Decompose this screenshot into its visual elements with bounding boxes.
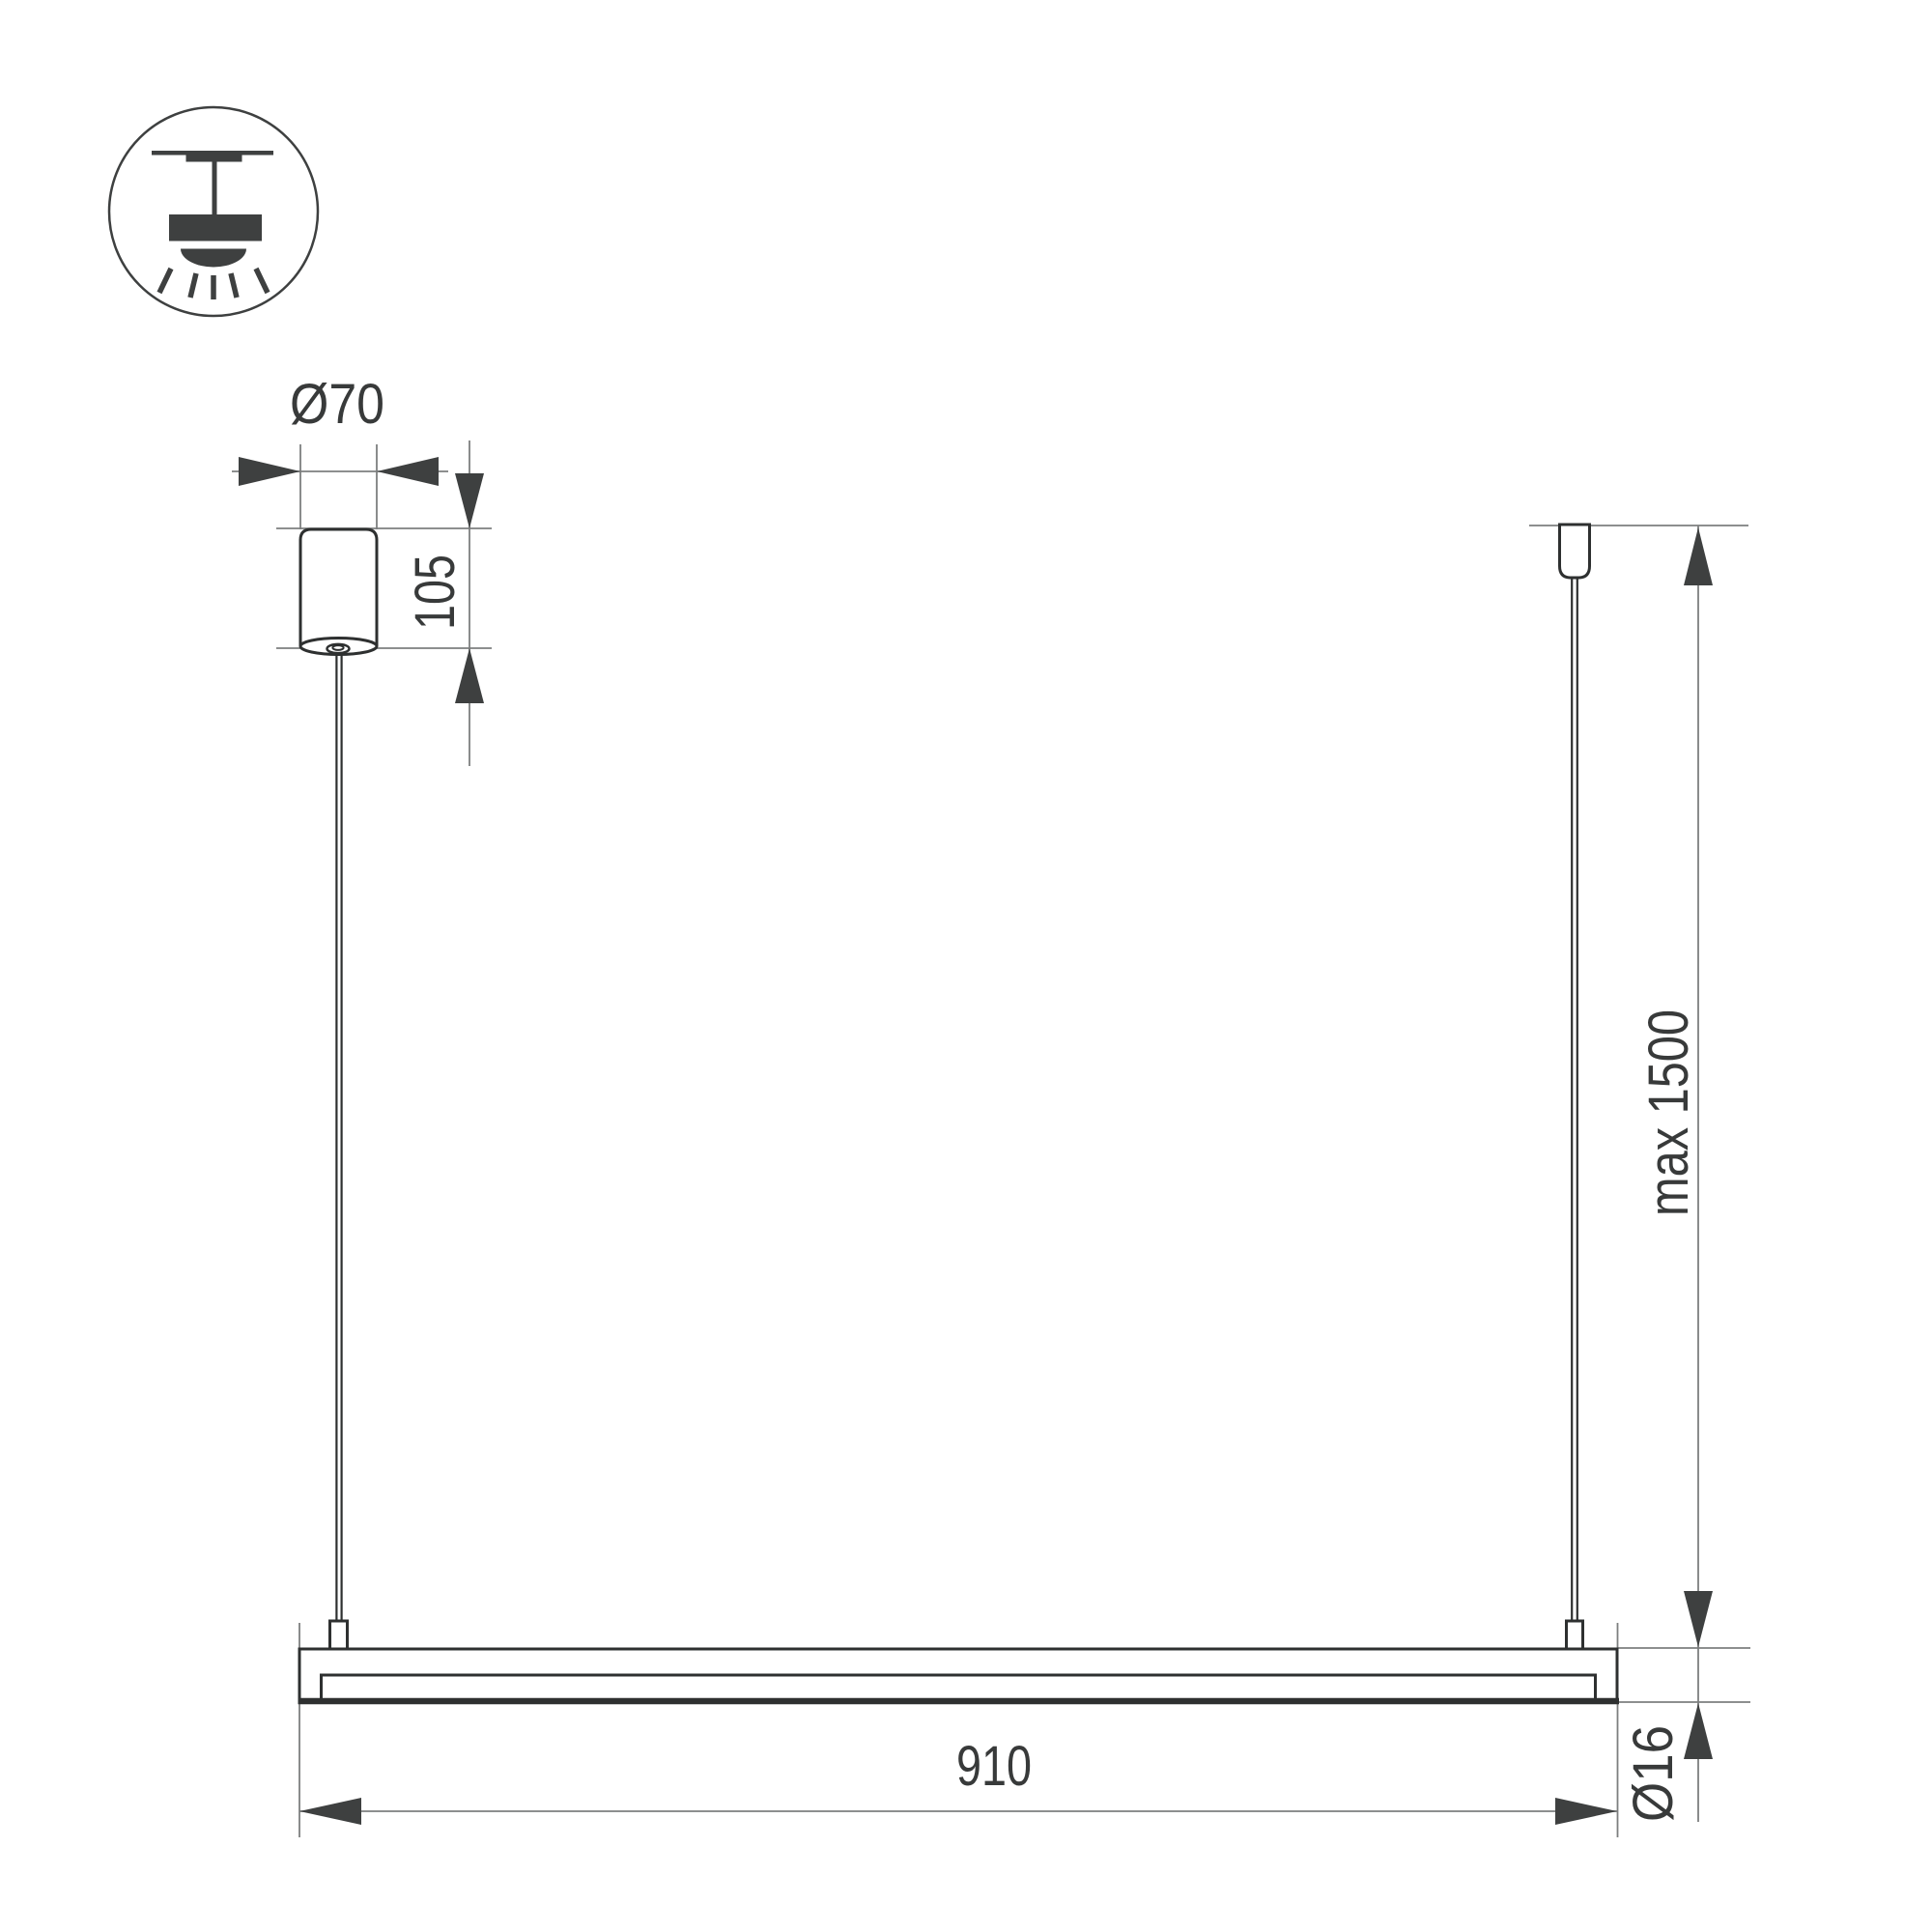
dimension-arrows (239, 457, 1713, 1825)
arrow-bar-dia-bottom (1684, 1703, 1713, 1759)
luminaire-bar (298, 1649, 1620, 1701)
cable-grommet-hole (332, 645, 343, 650)
bar-length-label: 910 (956, 1735, 1032, 1798)
suspension-length-label: max 1500 (1637, 1009, 1700, 1216)
bar-diameter-label: Ø16 (1622, 1725, 1685, 1822)
drawing-canvas: Ø70 105 max 1500 910 Ø16 (0, 0, 1932, 1932)
pendant-light-icon (109, 107, 318, 316)
suspension-cables (336, 576, 1577, 1622)
icon-stem (213, 161, 217, 216)
icon-lamp-body (169, 214, 262, 241)
ceiling-canopy (300, 529, 377, 655)
dimension-lines (232, 440, 1750, 1837)
left-cable-connector (330, 1621, 348, 1649)
canopy-diameter-label: Ø70 (290, 373, 384, 436)
arrow-suspension-bottom (1684, 1591, 1713, 1647)
arrow-canopy-height-top (455, 473, 484, 528)
arrow-canopy-height-bottom (455, 648, 484, 703)
canopy-body (300, 529, 377, 646)
arrow-bar-length-right (1555, 1798, 1617, 1825)
cable-grip (1560, 525, 1590, 578)
arrow-canopy-dia-right (377, 457, 439, 486)
arrow-canopy-dia-left (239, 457, 300, 486)
icon-mount-plate (186, 151, 242, 162)
canopy-height-label: 105 (404, 554, 467, 630)
arrow-suspension-top (1684, 527, 1713, 585)
arrow-bar-length-left (299, 1798, 361, 1825)
right-cable-connector (1567, 1621, 1583, 1649)
technical-drawing: Ø70 105 max 1500 910 Ø16 (0, 0, 1932, 1932)
